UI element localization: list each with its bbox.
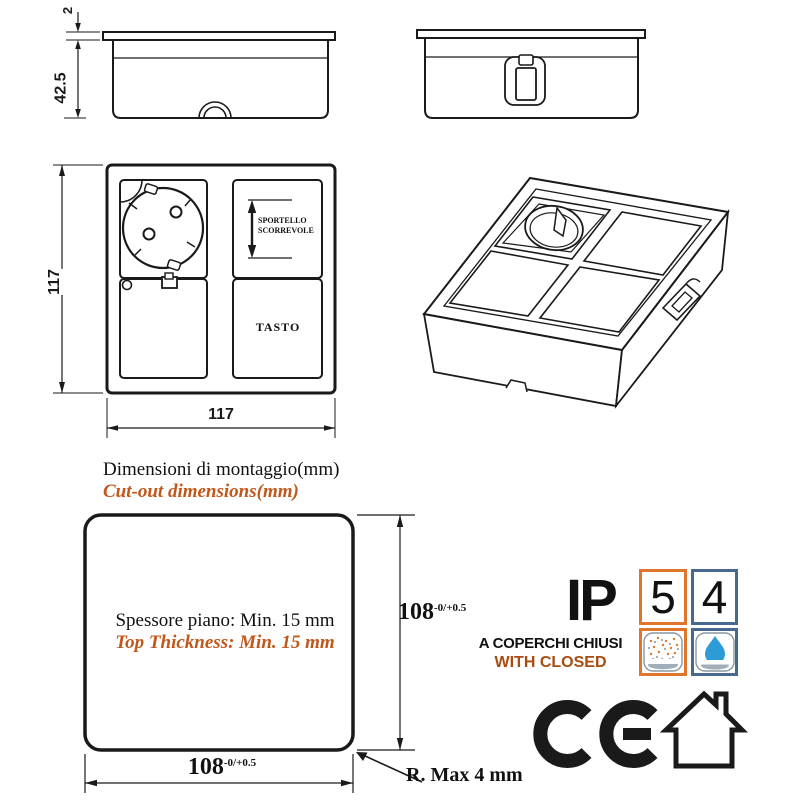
pin-hole	[171, 207, 182, 218]
front-width-label: 117	[196, 407, 246, 423]
button-label: TASTO	[252, 320, 304, 335]
box-lip	[417, 30, 645, 38]
thickness-note-it: Spessore piano: Min. 15 mm	[110, 610, 340, 632]
radius-note: R. Max 4 mm	[406, 764, 523, 787]
front-view-drawing	[45, 155, 360, 445]
box-lip	[103, 32, 335, 40]
house-icon	[660, 682, 748, 774]
technical-drawing-sheet: 2 42.5	[0, 0, 800, 800]
front-height-label: 117	[47, 269, 63, 295]
box-height-label: 42.5	[54, 72, 70, 103]
thickness-note-en: Top Thickness: Min. 15 mm	[110, 632, 340, 654]
cutout-title-it: Dimensioni di montaggio(mm)	[103, 459, 339, 481]
ip-prefix-label: IP	[566, 572, 615, 630]
dust-protection-icon	[639, 628, 687, 676]
ip-dust-digit-box: 5	[639, 569, 687, 625]
closed-covers-note-it: A COPERCHI CHIUSI	[468, 635, 633, 652]
cutout-title-en: Cut-out dimensions(mm)	[103, 481, 299, 503]
ip-water-digit-box: 4	[691, 569, 738, 625]
box-body	[113, 40, 328, 118]
lip-thickness-label: 2	[61, 7, 74, 14]
pin-hole	[144, 229, 155, 240]
water-splash-icon	[691, 628, 738, 676]
ce-mark-icon	[533, 692, 661, 777]
closed-covers-note-en: WITH CLOSED	[468, 654, 633, 672]
latch-clip	[505, 55, 545, 105]
dust-particles-glyph	[643, 632, 683, 672]
cutout-width-label: 108-0/+0.5	[152, 755, 292, 779]
blank-module-left	[120, 279, 207, 378]
isometric-view-drawing	[408, 148, 753, 448]
water-drop-glyph	[695, 632, 735, 672]
side-view-lateral-drawing	[405, 0, 660, 130]
cutout-height-label: 108-0/+0.5	[398, 600, 466, 624]
side-view-front-drawing	[40, 0, 350, 130]
sliding-door-label: SPORTELLO SCORREVOLE	[258, 216, 328, 236]
